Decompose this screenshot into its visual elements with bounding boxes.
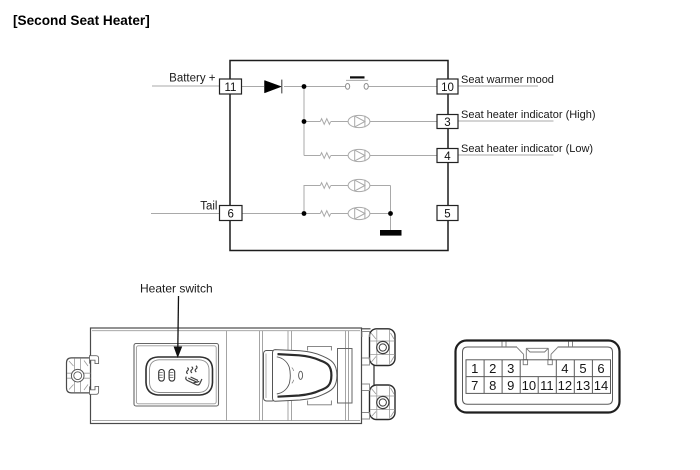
svg-text:6: 6 [227, 208, 233, 220]
svg-text:Heater switch: Heater switch [140, 282, 213, 296]
svg-text:10: 10 [522, 378, 536, 393]
svg-text:Seat warmer mood: Seat warmer mood [461, 74, 554, 86]
svg-text:8: 8 [489, 378, 496, 393]
svg-text:9: 9 [507, 378, 514, 393]
svg-text:11: 11 [540, 378, 554, 393]
svg-text:Tail: Tail [200, 201, 217, 213]
svg-text:Seat heater indicator (Low): Seat heater indicator (Low) [461, 143, 593, 155]
svg-text:5: 5 [579, 361, 586, 376]
svg-text:10: 10 [441, 82, 454, 94]
svg-text:6: 6 [597, 361, 604, 376]
svg-text:Seat heater indicator (High): Seat heater indicator (High) [461, 109, 596, 121]
svg-text:5: 5 [444, 208, 450, 220]
svg-text:[Second Seat Heater]: [Second Seat Heater] [13, 13, 150, 28]
svg-text:1: 1 [471, 361, 478, 376]
svg-text:2: 2 [489, 361, 496, 376]
svg-text:14: 14 [594, 378, 608, 393]
svg-text:3: 3 [444, 117, 450, 129]
svg-text:3: 3 [507, 361, 514, 376]
svg-text:4: 4 [444, 151, 451, 163]
svg-text:7: 7 [471, 378, 478, 393]
svg-text:Battery +: Battery + [169, 73, 216, 85]
svg-text:4: 4 [561, 361, 568, 376]
svg-text:12: 12 [558, 378, 572, 393]
svg-text:13: 13 [576, 378, 590, 393]
svg-text:11: 11 [225, 82, 237, 94]
